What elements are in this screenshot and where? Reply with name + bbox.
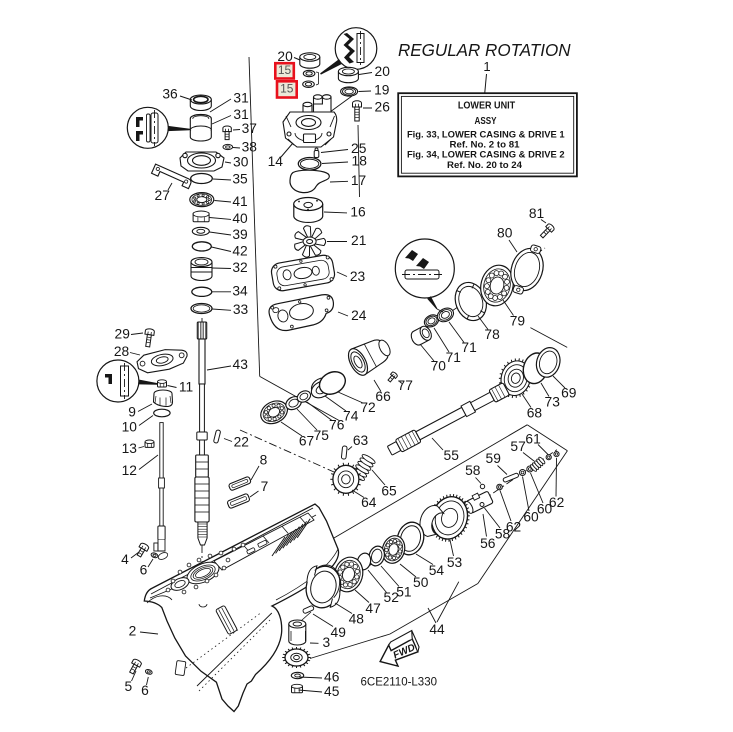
svg-text:29: 29 — [115, 326, 131, 341]
svg-text:37: 37 — [242, 121, 257, 136]
svg-text:REGULAR ROTATION: REGULAR ROTATION — [398, 40, 571, 60]
svg-text:38: 38 — [242, 140, 258, 155]
svg-text:LOWER UNIT: LOWER UNIT — [458, 99, 516, 111]
svg-text:68: 68 — [527, 405, 543, 420]
svg-text:71: 71 — [446, 350, 461, 365]
svg-text:12: 12 — [122, 463, 137, 478]
svg-text:3: 3 — [323, 635, 331, 650]
svg-text:50: 50 — [413, 575, 429, 590]
svg-text:13: 13 — [122, 441, 138, 456]
svg-text:47: 47 — [365, 601, 380, 616]
svg-text:9: 9 — [128, 405, 136, 420]
svg-text:63: 63 — [353, 433, 369, 448]
svg-text:65: 65 — [381, 484, 397, 499]
svg-text:43: 43 — [233, 357, 249, 372]
svg-text:6: 6 — [141, 683, 149, 698]
svg-text:40: 40 — [232, 211, 248, 226]
svg-text:4: 4 — [121, 552, 129, 567]
svg-text:49: 49 — [331, 625, 347, 640]
svg-text:22: 22 — [234, 434, 249, 449]
svg-text:54: 54 — [429, 563, 445, 578]
svg-text:73: 73 — [545, 394, 561, 409]
svg-text:48: 48 — [349, 612, 365, 627]
svg-text:58: 58 — [495, 527, 511, 542]
svg-text:52: 52 — [384, 590, 399, 605]
svg-text:30: 30 — [233, 155, 249, 170]
svg-text:36: 36 — [162, 87, 178, 102]
svg-text:15: 15 — [280, 82, 294, 96]
svg-text:57: 57 — [510, 439, 525, 454]
svg-text:5: 5 — [124, 679, 132, 694]
svg-text:46: 46 — [324, 670, 340, 685]
svg-text:7: 7 — [261, 479, 269, 494]
svg-text:60: 60 — [523, 510, 539, 525]
svg-text:39: 39 — [232, 227, 248, 242]
svg-text:19: 19 — [374, 83, 390, 98]
svg-text:35: 35 — [232, 172, 248, 187]
svg-text:58: 58 — [465, 463, 481, 478]
svg-text:77: 77 — [398, 378, 413, 393]
svg-text:59: 59 — [486, 451, 502, 466]
svg-text:11: 11 — [179, 380, 193, 395]
svg-text:6CE2110-L330: 6CE2110-L330 — [361, 675, 438, 689]
svg-text:1: 1 — [483, 59, 490, 74]
svg-text:ASSY: ASSY — [475, 115, 497, 127]
svg-text:31: 31 — [233, 90, 248, 105]
svg-text:55: 55 — [444, 448, 460, 463]
svg-text:70: 70 — [431, 359, 447, 374]
svg-text:23: 23 — [350, 269, 366, 284]
svg-text:6: 6 — [140, 562, 148, 577]
svg-text:45: 45 — [324, 684, 340, 699]
svg-text:20: 20 — [277, 49, 293, 64]
svg-text:66: 66 — [375, 389, 391, 404]
svg-text:81: 81 — [529, 206, 544, 221]
svg-text:34: 34 — [232, 283, 248, 298]
svg-text:75: 75 — [314, 428, 330, 443]
svg-text:79: 79 — [510, 314, 526, 329]
svg-text:41: 41 — [232, 194, 247, 209]
svg-text:44: 44 — [429, 622, 445, 637]
svg-text:69: 69 — [561, 386, 577, 401]
svg-text:61: 61 — [525, 432, 540, 447]
svg-text:56: 56 — [480, 536, 496, 551]
svg-text:17: 17 — [351, 173, 366, 188]
svg-text:31: 31 — [233, 107, 248, 122]
svg-text:80: 80 — [497, 225, 513, 240]
svg-text:21: 21 — [351, 233, 366, 248]
svg-text:Ref. No. 20 to 24: Ref. No. 20 to 24 — [447, 160, 523, 171]
svg-text:8: 8 — [260, 453, 268, 468]
svg-text:32: 32 — [232, 260, 247, 275]
svg-text:28: 28 — [114, 344, 130, 359]
svg-text:33: 33 — [233, 302, 249, 317]
svg-text:10: 10 — [122, 420, 138, 435]
svg-text:26: 26 — [375, 100, 391, 115]
svg-text:53: 53 — [447, 555, 463, 570]
svg-text:18: 18 — [352, 154, 368, 169]
svg-text:78: 78 — [484, 327, 500, 342]
svg-text:60: 60 — [537, 502, 553, 517]
svg-text:42: 42 — [232, 243, 247, 258]
svg-text:20: 20 — [375, 64, 391, 79]
svg-text:27: 27 — [155, 188, 170, 203]
svg-text:16: 16 — [350, 205, 366, 220]
svg-text:15: 15 — [278, 63, 292, 77]
svg-text:2: 2 — [129, 624, 137, 639]
svg-text:24: 24 — [351, 308, 367, 323]
